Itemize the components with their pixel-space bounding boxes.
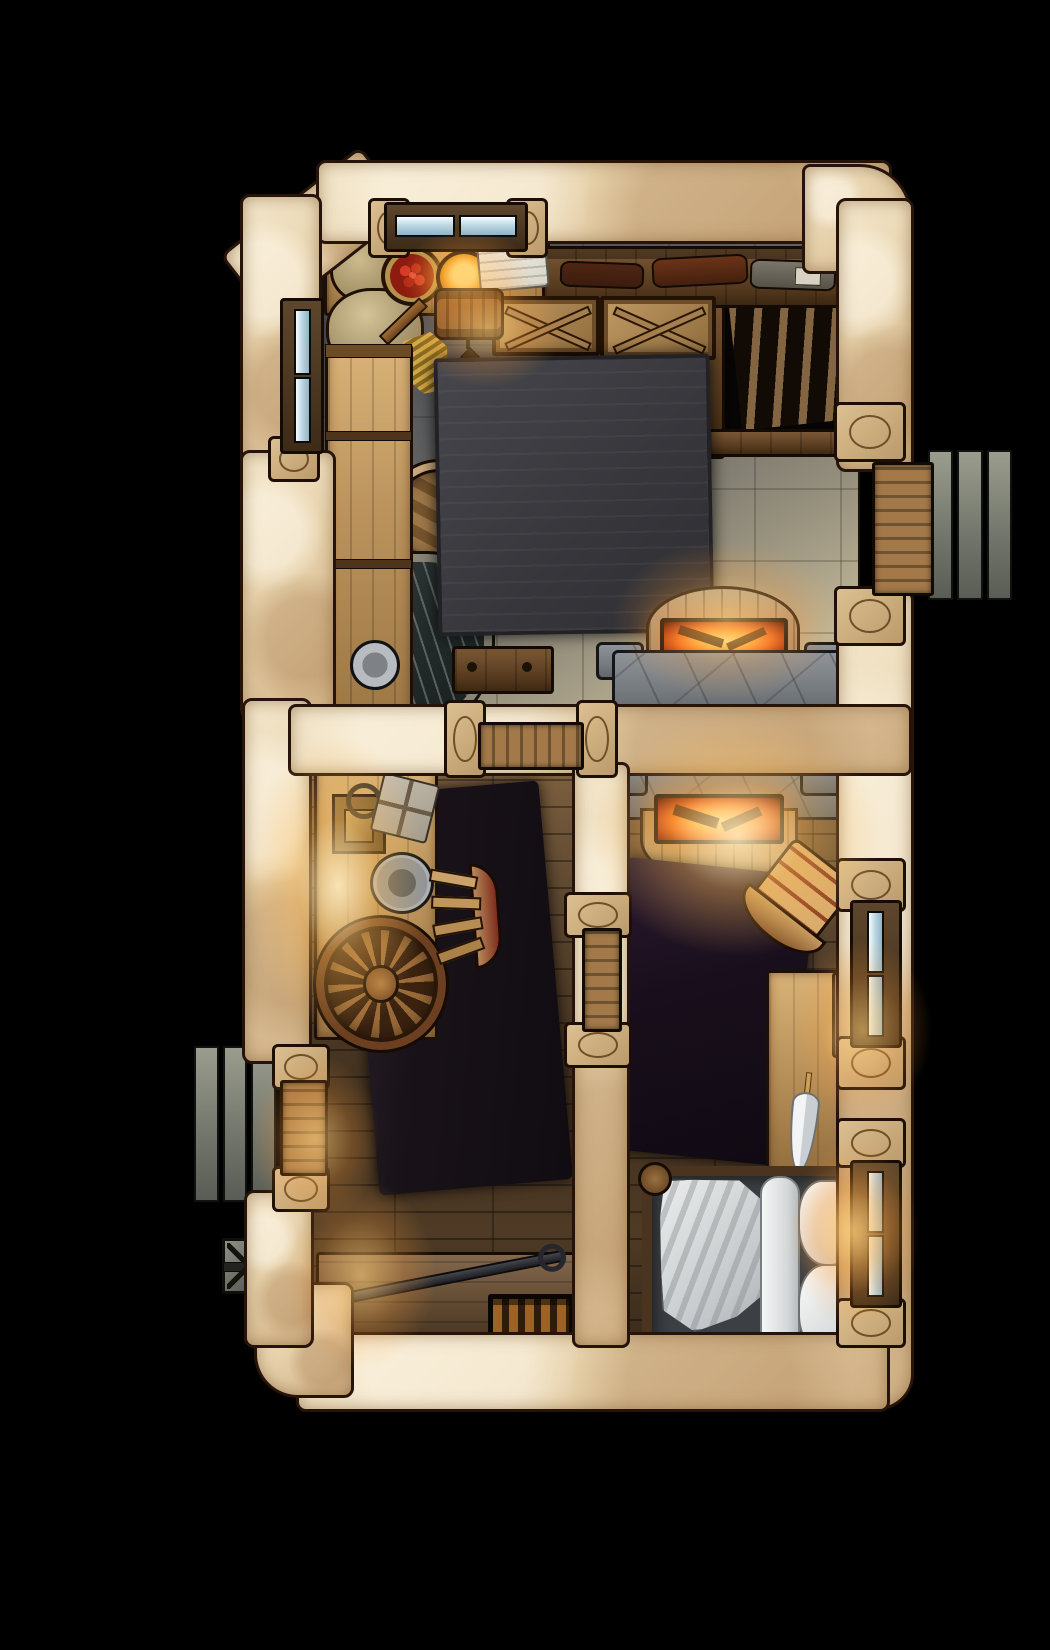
workroom-chair [429, 862, 500, 966]
wall-shelf [452, 646, 554, 694]
step [957, 450, 982, 600]
bed-post [638, 1162, 672, 1196]
metal-bowl [370, 852, 434, 914]
window-glass [294, 377, 311, 443]
step [194, 1046, 219, 1202]
wall-left-middle [240, 450, 336, 720]
window-glass [459, 215, 517, 237]
exterior-steps-left [194, 1046, 276, 1202]
window-glass [867, 1235, 884, 1297]
window-glass [867, 1171, 884, 1233]
crate [492, 296, 600, 356]
step [223, 1046, 248, 1202]
bed-bolster [760, 1176, 800, 1358]
window-glass [294, 309, 311, 375]
right-window-lower [850, 1160, 902, 1308]
metal-plate [350, 640, 400, 690]
interior-door-bedroom [582, 928, 622, 1032]
step [987, 450, 1012, 600]
window-glass [867, 911, 884, 973]
wine-bottle [651, 254, 748, 289]
exterior-steps-right [928, 450, 1012, 600]
wall-left-bottom [244, 1190, 314, 1348]
wagon-wheel [316, 918, 446, 1050]
exterior-door-right [872, 462, 934, 596]
wall-pillar [834, 402, 906, 462]
top-window [384, 202, 528, 252]
left-window [280, 298, 324, 454]
exterior-door-left [280, 1080, 328, 1176]
crate [600, 296, 716, 360]
large-dark-table [434, 354, 715, 637]
right-window-upper [850, 900, 902, 1048]
lower-firebox-embers [654, 794, 784, 844]
interior-door-great-room [478, 722, 584, 770]
wine-bottle [560, 261, 645, 290]
window-glass [867, 975, 884, 1037]
battle-map [0, 0, 1050, 1650]
window-glass [395, 215, 455, 237]
